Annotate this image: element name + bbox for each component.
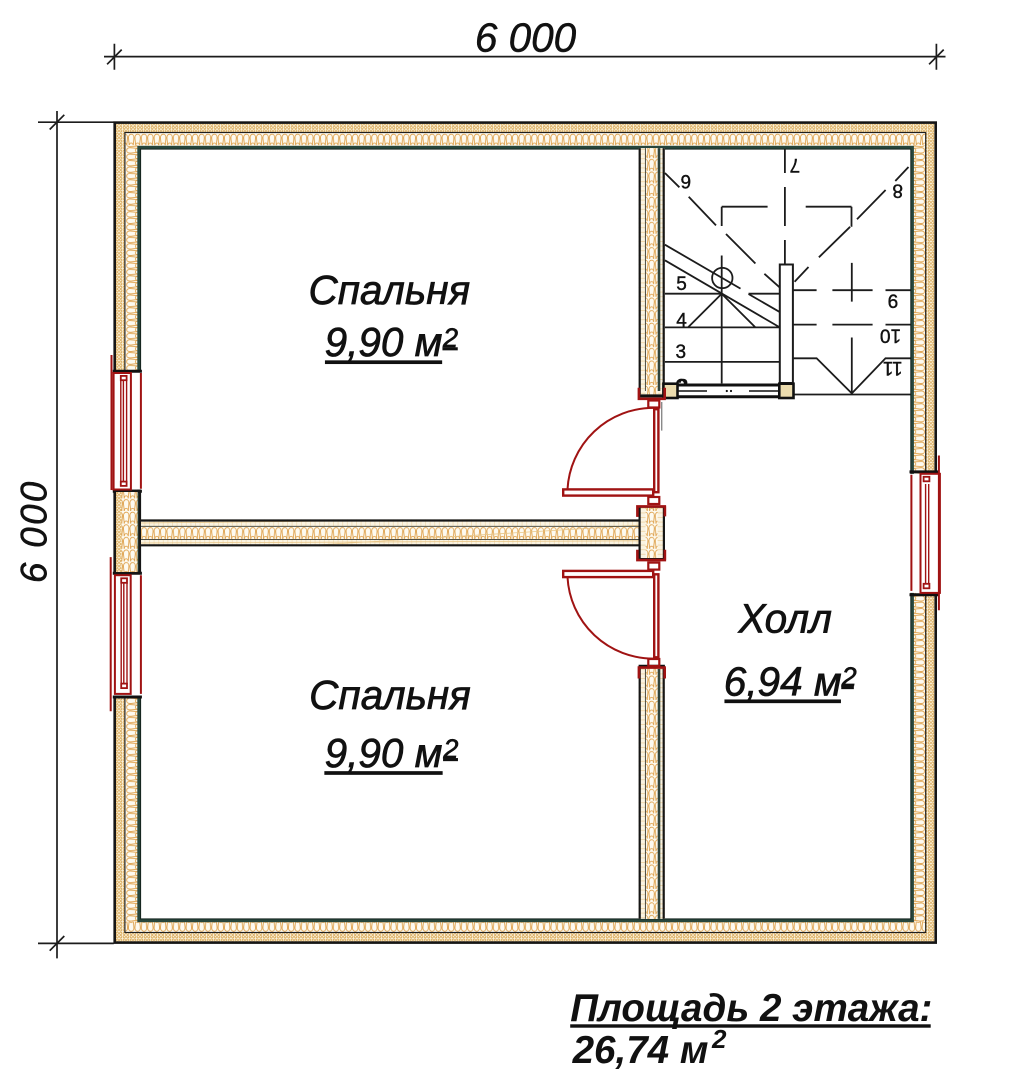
svg-text:9,90 м: 9,90 м bbox=[325, 319, 443, 365]
svg-text:Спальня: Спальня bbox=[308, 267, 470, 313]
svg-text:8: 8 bbox=[892, 180, 903, 201]
svg-text:9: 9 bbox=[888, 290, 899, 311]
svg-text:6 000: 6 000 bbox=[475, 15, 577, 61]
svg-text:Спальня: Спальня bbox=[309, 672, 471, 718]
svg-text:9,90 м: 9,90 м bbox=[325, 730, 443, 776]
svg-text:11: 11 bbox=[883, 357, 903, 378]
svg-text:10: 10 bbox=[880, 324, 901, 345]
svg-text:4: 4 bbox=[676, 310, 687, 331]
svg-text:3: 3 bbox=[676, 342, 687, 363]
svg-text:7: 7 bbox=[790, 154, 801, 175]
svg-text:6 000: 6 000 bbox=[14, 480, 55, 584]
svg-text:Площадь 2 этажа:: Площадь 2 этажа: bbox=[570, 987, 932, 1030]
svg-text:6,94 м: 6,94 м bbox=[724, 659, 842, 705]
svg-text:2: 2 bbox=[711, 1024, 727, 1054]
svg-text:26,74 м: 26,74 м bbox=[572, 1029, 709, 1072]
svg-text:Холл: Холл bbox=[737, 596, 832, 642]
svg-text:6: 6 bbox=[681, 170, 692, 191]
svg-text:5: 5 bbox=[676, 274, 687, 295]
